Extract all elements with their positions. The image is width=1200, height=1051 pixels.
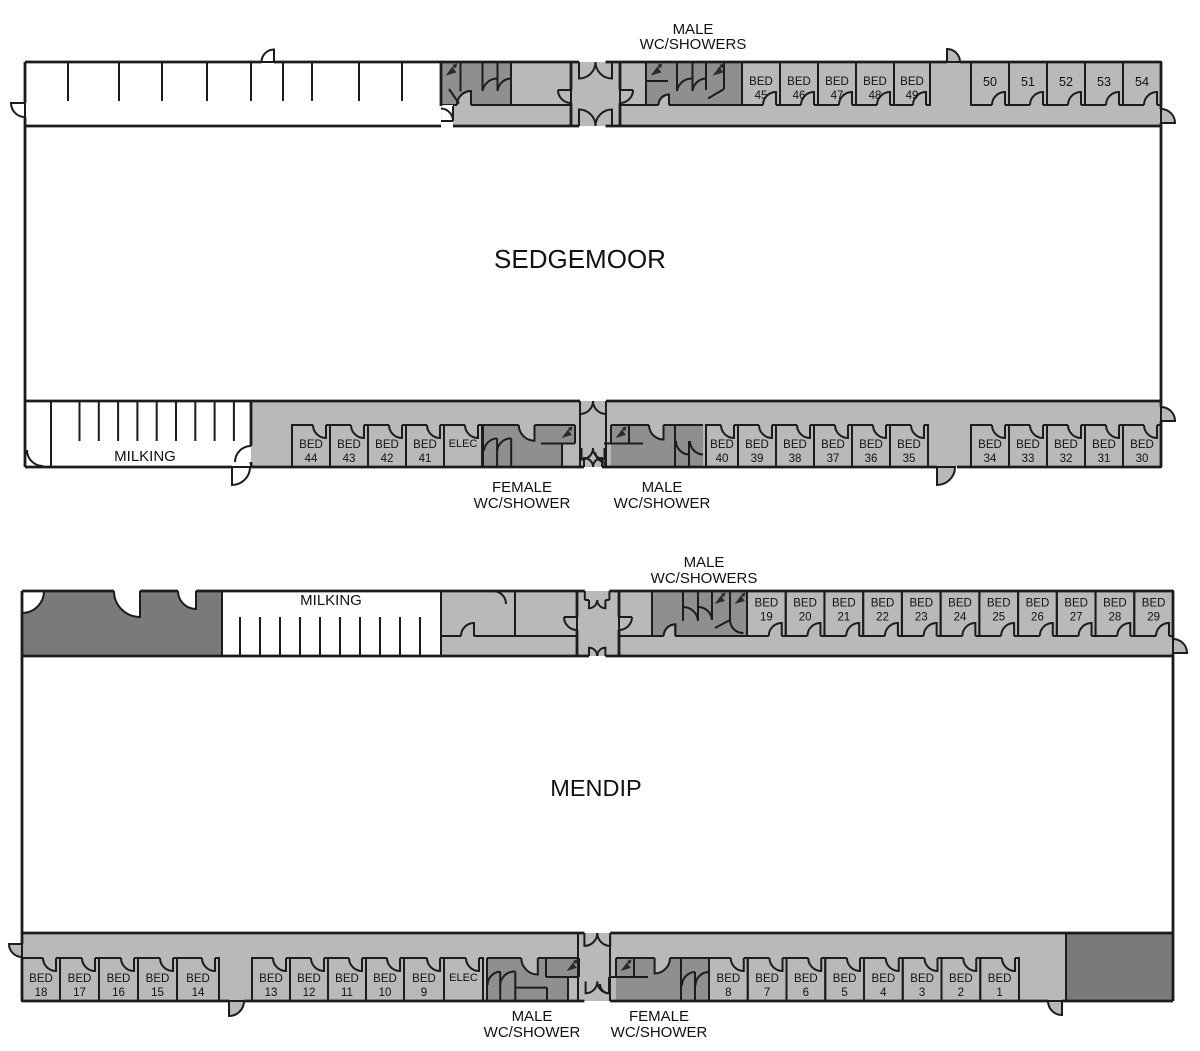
svg-text:WC/SHOWER: WC/SHOWER [474, 495, 571, 512]
svg-text:BED: BED [299, 439, 323, 451]
svg-text:BED: BED [978, 439, 1002, 451]
svg-text:BED: BED [1026, 598, 1050, 610]
svg-text:BED: BED [375, 439, 399, 451]
svg-text:BED: BED [872, 973, 896, 985]
svg-text:BED: BED [825, 76, 849, 88]
svg-text:27: 27 [1070, 612, 1083, 624]
svg-text:ELEC: ELEC [449, 438, 478, 450]
svg-text:10: 10 [379, 987, 392, 999]
svg-text:BED: BED [1130, 439, 1154, 451]
svg-text:52: 52 [1059, 75, 1073, 89]
svg-text:24: 24 [954, 612, 967, 624]
svg-text:WC/SHOWERS: WC/SHOWERS [640, 36, 747, 53]
svg-text:50: 50 [983, 75, 997, 89]
svg-text:BED: BED [900, 76, 924, 88]
svg-text:BED: BED [186, 973, 210, 985]
svg-text:BED: BED [949, 973, 973, 985]
svg-text:BED: BED [297, 973, 321, 985]
svg-text:BED: BED [717, 973, 741, 985]
svg-text:33: 33 [1022, 453, 1035, 465]
svg-text:37: 37 [827, 453, 840, 465]
svg-text:18: 18 [35, 987, 48, 999]
svg-text:17: 17 [73, 987, 86, 999]
svg-text:BED: BED [859, 439, 883, 451]
svg-text:53: 53 [1097, 75, 1111, 89]
svg-text:9: 9 [421, 987, 427, 999]
svg-text:BED: BED [755, 973, 779, 985]
svg-text:25: 25 [992, 612, 1005, 624]
svg-text:BED: BED [68, 973, 92, 985]
svg-text:31: 31 [1098, 453, 1111, 465]
svg-text:51: 51 [1021, 75, 1035, 89]
svg-text:BED: BED [412, 973, 436, 985]
svg-text:WC/SHOWER: WC/SHOWER [484, 1024, 581, 1041]
svg-text:35: 35 [903, 453, 916, 465]
svg-text:42: 42 [381, 453, 394, 465]
svg-text:4: 4 [880, 987, 887, 999]
svg-text:1: 1 [996, 987, 1002, 999]
svg-text:BED: BED [1054, 439, 1078, 451]
svg-text:ELEC: ELEC [449, 972, 478, 984]
svg-text:49: 49 [906, 90, 919, 102]
svg-text:BED: BED [787, 76, 811, 88]
svg-text:13: 13 [265, 987, 278, 999]
svg-text:BED: BED [863, 76, 887, 88]
svg-text:BED: BED [335, 973, 359, 985]
svg-text:BED: BED [1064, 598, 1088, 610]
svg-text:29: 29 [1147, 612, 1160, 624]
svg-text:BED: BED [745, 439, 769, 451]
svg-text:MILKING: MILKING [300, 592, 362, 609]
svg-text:BED: BED [1142, 598, 1166, 610]
svg-text:BED: BED [1016, 439, 1040, 451]
svg-text:48: 48 [869, 90, 882, 102]
svg-text:47: 47 [831, 90, 844, 102]
svg-text:BED: BED [833, 973, 857, 985]
svg-text:BED: BED [373, 973, 397, 985]
svg-text:BED: BED [337, 439, 361, 451]
svg-text:BED: BED [413, 439, 437, 451]
svg-text:38: 38 [789, 453, 802, 465]
svg-text:30: 30 [1136, 453, 1149, 465]
svg-text:BED: BED [988, 973, 1012, 985]
svg-text:11: 11 [341, 987, 353, 999]
svg-text:3: 3 [919, 987, 925, 999]
svg-text:BED: BED [832, 598, 856, 610]
svg-text:BED: BED [910, 973, 934, 985]
svg-text:19: 19 [760, 612, 773, 624]
svg-text:BED: BED [783, 439, 807, 451]
svg-text:44: 44 [305, 453, 318, 465]
svg-text:MENDIP: MENDIP [550, 775, 641, 801]
svg-text:BED: BED [897, 439, 921, 451]
svg-text:20: 20 [799, 612, 812, 624]
svg-text:BED: BED [793, 598, 817, 610]
svg-text:FEMALE: FEMALE [629, 1008, 689, 1025]
svg-text:BED: BED [1103, 598, 1127, 610]
svg-text:BED: BED [987, 598, 1011, 610]
svg-text:BED: BED [259, 973, 283, 985]
svg-text:39: 39 [751, 453, 764, 465]
svg-text:36: 36 [865, 453, 878, 465]
svg-text:12: 12 [303, 987, 316, 999]
svg-text:32: 32 [1060, 453, 1073, 465]
svg-text:BED: BED [107, 973, 131, 985]
svg-text:MALE: MALE [512, 1008, 553, 1025]
svg-text:BED: BED [749, 76, 773, 88]
svg-text:14: 14 [192, 987, 205, 999]
svg-text:SEDGEMOOR: SEDGEMOOR [494, 244, 666, 274]
svg-text:43: 43 [343, 453, 356, 465]
svg-text:MALE: MALE [642, 479, 683, 496]
svg-text:BED: BED [948, 598, 972, 610]
svg-text:8: 8 [725, 987, 731, 999]
svg-text:WC/SHOWER: WC/SHOWER [614, 495, 711, 512]
svg-text:BED: BED [871, 598, 895, 610]
svg-text:5: 5 [841, 987, 847, 999]
svg-text:46: 46 [793, 90, 806, 102]
svg-text:40: 40 [716, 453, 729, 465]
svg-text:2: 2 [958, 987, 964, 999]
svg-text:BED: BED [710, 439, 734, 451]
svg-text:26: 26 [1031, 612, 1044, 624]
svg-text:41: 41 [419, 453, 432, 465]
svg-text:BED: BED [146, 973, 170, 985]
svg-text:16: 16 [112, 987, 125, 999]
svg-text:34: 34 [984, 453, 997, 465]
svg-text:MALE: MALE [684, 554, 725, 571]
svg-text:7: 7 [764, 987, 770, 999]
svg-text:WC/SHOWER: WC/SHOWER [611, 1024, 708, 1041]
svg-text:23: 23 [915, 612, 928, 624]
svg-text:22: 22 [876, 612, 889, 624]
svg-text:BED: BED [821, 439, 845, 451]
svg-text:54: 54 [1135, 75, 1149, 89]
svg-text:FEMALE: FEMALE [492, 479, 552, 496]
svg-text:21: 21 [837, 612, 850, 624]
svg-text:BED: BED [29, 973, 53, 985]
svg-text:MILKING: MILKING [114, 448, 176, 465]
svg-text:BED: BED [794, 973, 818, 985]
svg-text:28: 28 [1109, 612, 1122, 624]
svg-text:15: 15 [151, 987, 164, 999]
svg-text:WC/SHOWERS: WC/SHOWERS [651, 570, 758, 587]
svg-text:BED: BED [755, 598, 779, 610]
svg-text:BED: BED [909, 598, 933, 610]
svg-text:45: 45 [755, 90, 768, 102]
svg-text:BED: BED [1092, 439, 1116, 451]
svg-text:6: 6 [803, 987, 809, 999]
